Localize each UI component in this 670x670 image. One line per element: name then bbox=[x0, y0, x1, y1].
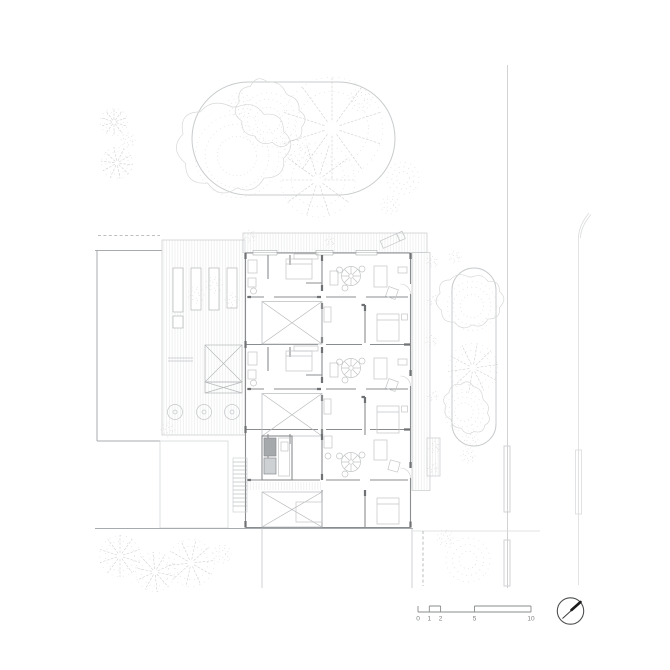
planting-island-top bbox=[176, 66, 395, 228]
scale-label-1: 1 bbox=[427, 616, 431, 623]
street-edges bbox=[504, 65, 591, 588]
scale-label-2: 2 bbox=[439, 616, 443, 623]
external-stair bbox=[233, 458, 247, 512]
door-arcs bbox=[401, 284, 411, 478]
elevator bbox=[264, 438, 276, 456]
planting-bed-east bbox=[427, 249, 506, 466]
apartment-module-2 bbox=[247, 346, 408, 436]
scale-label-10: 10 bbox=[527, 616, 535, 623]
trees-right-of-island bbox=[377, 155, 425, 217]
north-arrow-icon bbox=[557, 598, 583, 624]
west-deck bbox=[158, 240, 245, 440]
scale-label-0: 0 bbox=[416, 616, 420, 623]
floor-plan-drawing: 0 1 2 5 10 bbox=[0, 0, 670, 670]
north-deck-band bbox=[243, 233, 427, 253]
scale-label-5: 5 bbox=[473, 616, 477, 623]
scale-bar: 0 1 2 5 10 bbox=[416, 606, 535, 623]
building-plan bbox=[233, 228, 442, 528]
apartment-module-3 bbox=[247, 434, 408, 528]
curb-bay-2 bbox=[504, 540, 510, 586]
entry-mat bbox=[247, 482, 321, 490]
trees-top-left bbox=[96, 108, 138, 184]
tree-canopy-group bbox=[176, 66, 382, 228]
curb-bay-1 bbox=[504, 446, 510, 512]
south-garden bbox=[95, 527, 540, 599]
site-plan-svg: 0 1 2 5 10 bbox=[0, 0, 670, 670]
apartment-module-1 bbox=[247, 254, 408, 344]
